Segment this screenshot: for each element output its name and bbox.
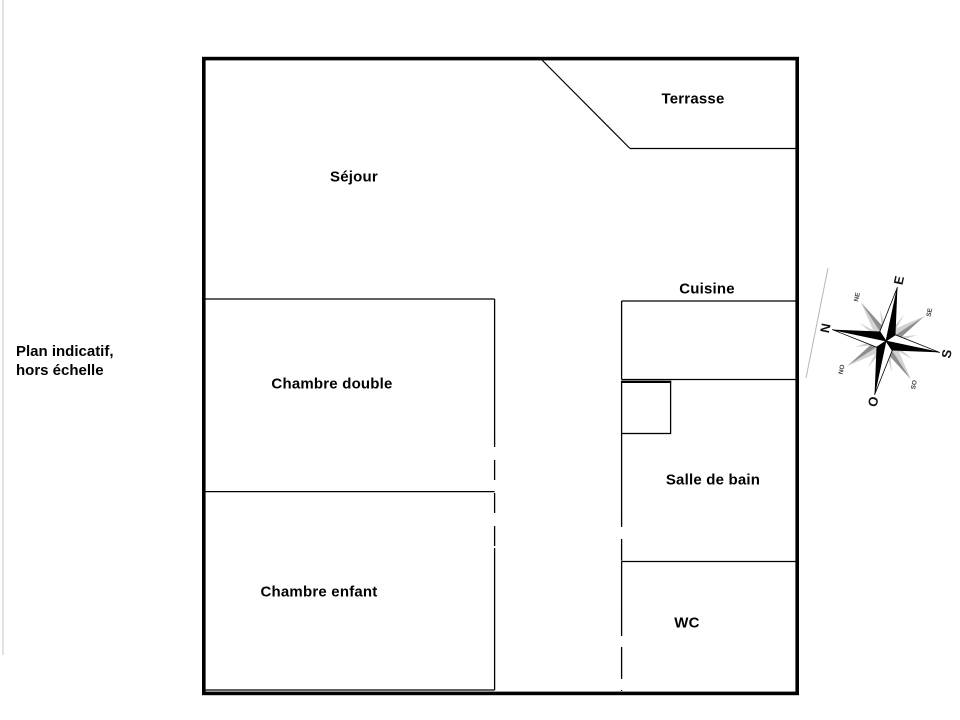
compass-northeast-label: NE <box>853 291 862 302</box>
room-label-salle-de-bain: Salle de bain <box>666 472 760 489</box>
plan-note-line2: hors échelle <box>16 361 114 380</box>
room-label-sejour: Séjour <box>330 169 378 186</box>
compass-needle-line <box>806 268 828 378</box>
floor-plan-page: N E S O NE SE SO NO Terrasse Séjour Cuis… <box>0 0 960 720</box>
compass-south-label: S <box>938 348 955 360</box>
compass-cardinal-points <box>821 276 951 406</box>
compass-west-label: O <box>865 395 882 408</box>
floor-plan-drawing: N E S O NE SE SO NO <box>0 0 960 720</box>
room-label-terrasse: Terrasse <box>661 91 724 108</box>
room-label-chambre-enfant: Chambre enfant <box>261 584 378 601</box>
compass-southwest-label: SO <box>910 380 919 391</box>
room-label-cuisine: Cuisine <box>679 281 735 298</box>
room-label-wc: WC <box>674 615 699 632</box>
compass-north-label: N <box>817 322 834 334</box>
compass-east-label: E <box>891 274 908 286</box>
compass-northwest-label: NO <box>838 364 847 375</box>
room-label-chambre-double: Chambre double <box>271 376 392 393</box>
compass-southeast-label: SE <box>926 307 935 318</box>
plan-note: Plan indicatif, hors échelle <box>16 342 114 380</box>
closet-box <box>622 382 671 434</box>
compass-rose: N E S O NE SE SO NO <box>804 261 960 421</box>
plan-note-line1: Plan indicatif, <box>16 342 114 361</box>
terrasse-diagonal-wall <box>541 59 631 149</box>
